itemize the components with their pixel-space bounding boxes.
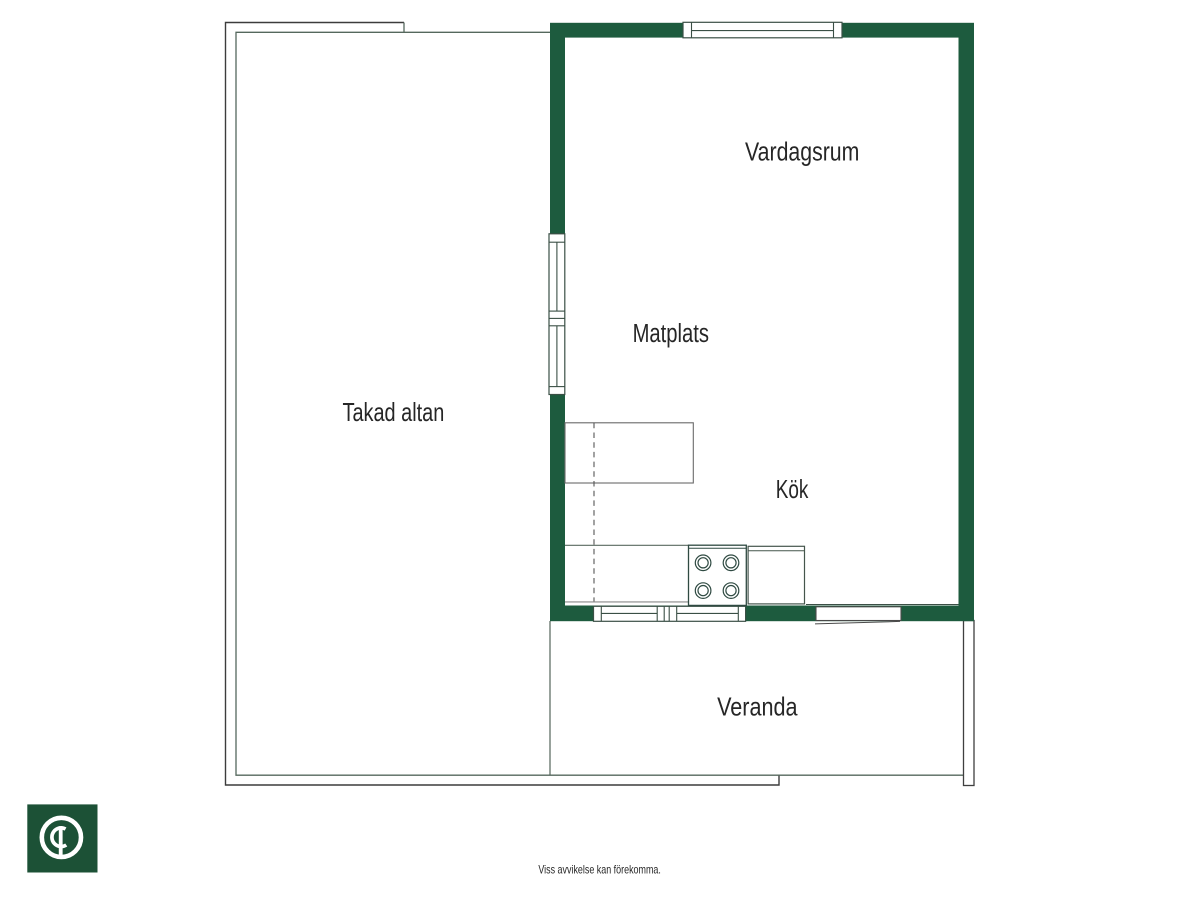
svg-text:Viss avvikelse kan förekomma.: Viss avvikelse kan förekomma. (538, 863, 661, 877)
svg-text:Takad altan: Takad altan (343, 397, 445, 426)
svg-text:Veranda: Veranda (717, 692, 798, 721)
svg-text:Kök: Kök (776, 474, 809, 504)
svg-text:Vardagsrum: Vardagsrum (745, 138, 859, 168)
svg-text:Matplats: Matplats (633, 319, 709, 348)
